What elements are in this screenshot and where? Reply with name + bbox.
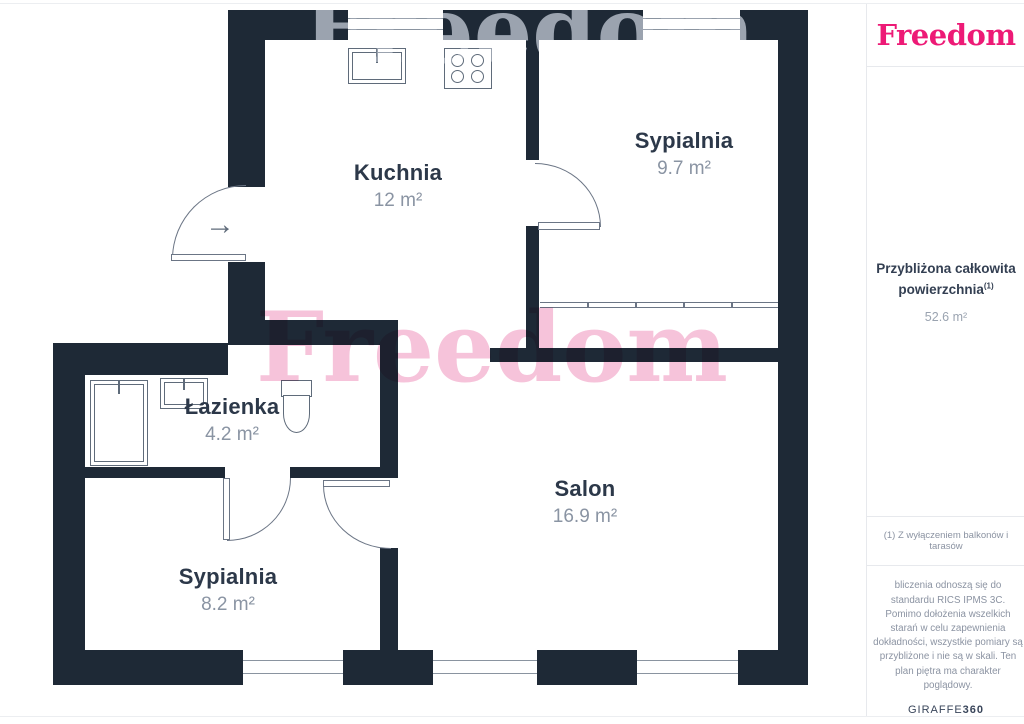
freedom-logo: Freedom bbox=[876, 18, 1015, 52]
disclaimer-section: bliczenia odnoszą się do standardu RICS … bbox=[867, 566, 1024, 716]
disclaimer-text: bliczenia odnoszą się do standardu RICS … bbox=[873, 579, 1023, 693]
window bbox=[433, 650, 537, 685]
entrance-door-leaf bbox=[171, 254, 246, 261]
bathroom-door-leaf bbox=[223, 478, 230, 540]
room-label-salon: Salon 16.9 m² bbox=[485, 476, 685, 528]
footnote-section: (1) Z wyłączeniem balkonów i tarasów bbox=[867, 517, 1024, 566]
wall bbox=[537, 650, 637, 685]
bathroom-door-arc bbox=[227, 478, 291, 541]
wall bbox=[53, 343, 228, 375]
bedroom-small-door-leaf bbox=[323, 480, 390, 487]
floor-plan: → Freedom Freedom Kuchnia 12 m² bbox=[0, 0, 866, 724]
total-area-value: 52.6 m² bbox=[925, 310, 967, 324]
window bbox=[637, 650, 738, 685]
wall bbox=[53, 343, 85, 685]
room-label-kuchnia: Kuchnia 12 m² bbox=[298, 160, 498, 212]
bathroom-sink-tap bbox=[183, 378, 185, 390]
brand-logo-section: Freedom bbox=[867, 4, 1024, 67]
wall bbox=[343, 650, 433, 685]
window bbox=[243, 650, 343, 685]
total-area-label: Przybliżona całkowita powierzchnia(1) bbox=[876, 259, 1016, 301]
watermark-gray: Freedom bbox=[303, 0, 755, 76]
entrance-arrow-icon: → bbox=[205, 210, 235, 240]
info-sidebar: Freedom Przybliżona całkowita powierzchn… bbox=[866, 4, 1024, 716]
wall bbox=[228, 10, 265, 187]
total-area-section: Przybliżona całkowita powierzchnia(1) 52… bbox=[867, 67, 1024, 517]
wall bbox=[738, 650, 808, 685]
wall bbox=[380, 548, 398, 650]
bedroom-small-door-arc bbox=[323, 485, 391, 549]
footnote-marker: (1) bbox=[984, 282, 994, 291]
wall bbox=[778, 10, 808, 685]
provider-logo: GIRAFFE360 bbox=[873, 704, 1019, 716]
room-label-lazienka: Łazienka 4.2 m² bbox=[132, 394, 332, 446]
wall bbox=[290, 467, 388, 478]
floor-plan-page: → Freedom Freedom Kuchnia 12 m² bbox=[0, 0, 1024, 724]
watermark-pink: Freedom bbox=[256, 300, 728, 396]
bedroom-large-door-leaf bbox=[538, 222, 600, 230]
wall bbox=[85, 467, 225, 478]
room-label-sypialnia-mala: Sypialnia 8.2 m² bbox=[128, 564, 328, 616]
washing-machine-pipe bbox=[118, 380, 120, 394]
room-label-sypialnia-duza: Sypialnia 9.7 m² bbox=[584, 128, 784, 180]
